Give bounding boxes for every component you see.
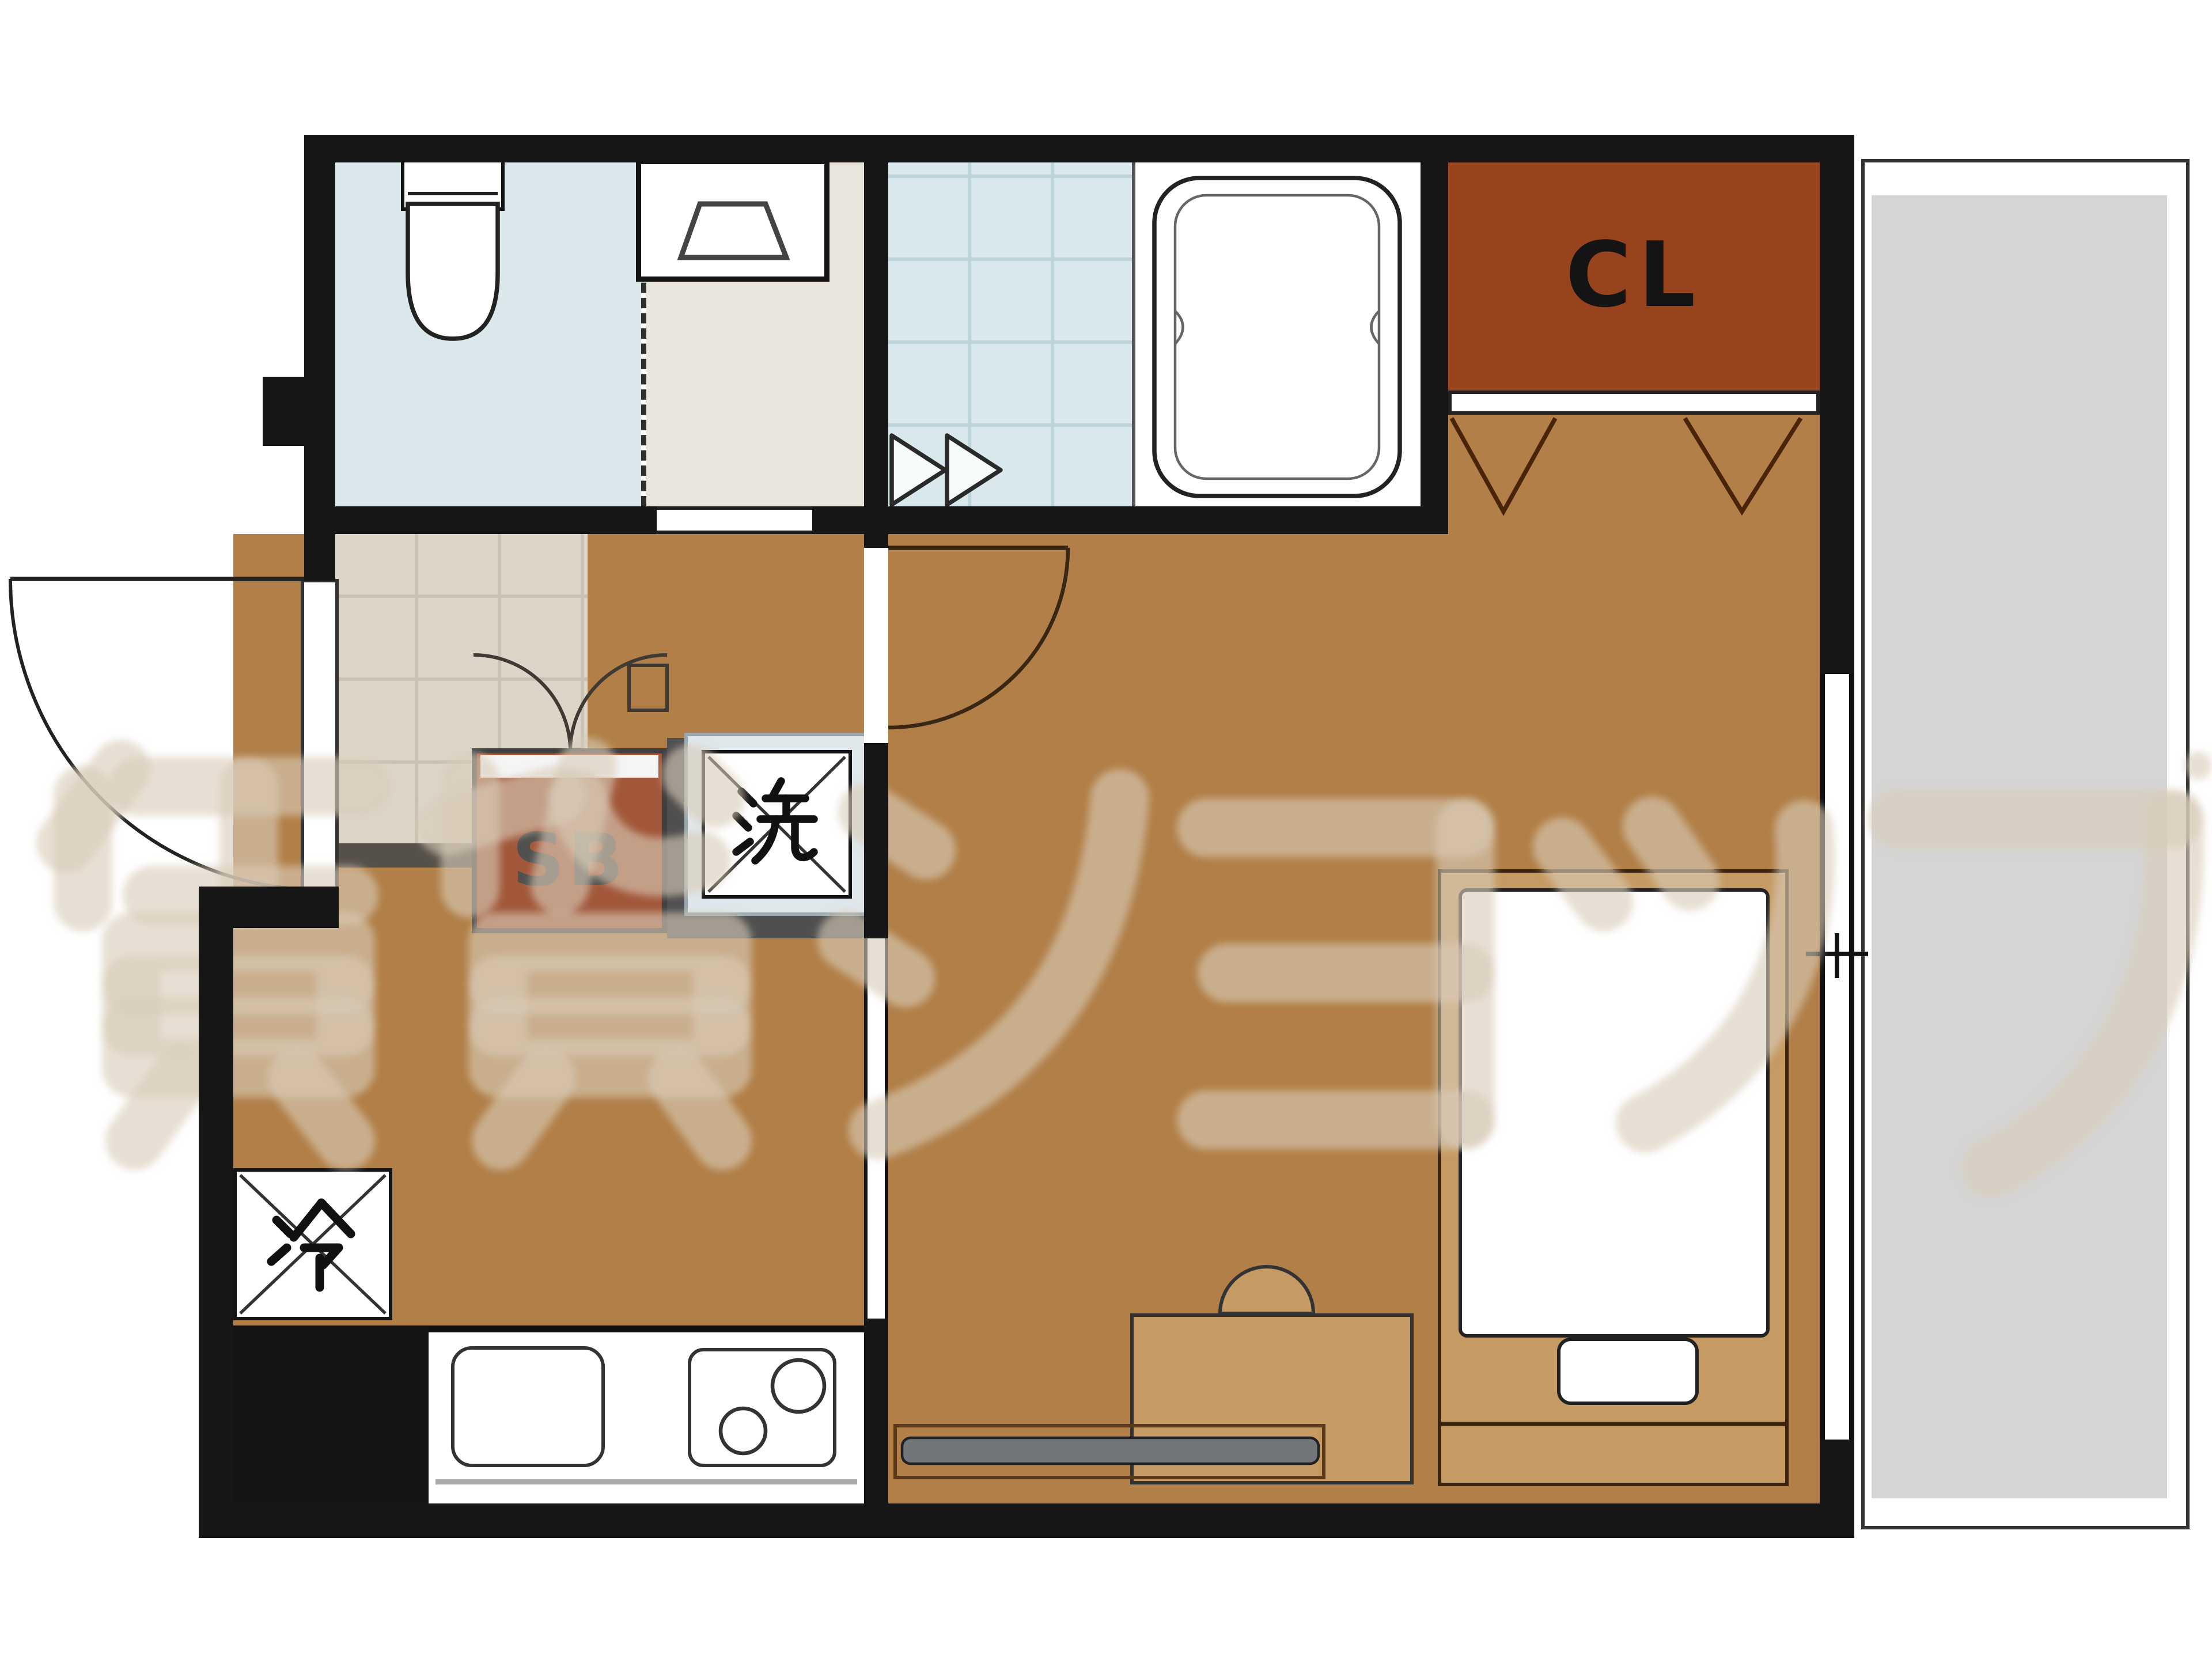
wall-hall-top-right (812, 506, 1448, 534)
wall-top (304, 135, 1854, 162)
wall-divider-mid (864, 743, 888, 938)
wall-hall-top-left (304, 506, 657, 534)
floor-plan-image: CL SB (0, 0, 2212, 1659)
floor-plan-canvas: CL SB (0, 0, 2212, 1659)
wall-divider-lower (864, 1319, 888, 1503)
shoebox-door-swing (474, 655, 667, 748)
wall-bottom (199, 1503, 1854, 1538)
closet-bifold-icon (1452, 418, 1801, 512)
toilet-icon (408, 194, 498, 339)
bathtub-icon (1154, 178, 1400, 496)
wall-entrance-jog (199, 887, 339, 928)
watermark (66, 752, 2212, 1168)
wall-right-lower (1820, 1440, 1854, 1538)
stove-burners-icon (721, 1360, 824, 1453)
chair-icon (1220, 1267, 1313, 1313)
wall-divider-upper (864, 161, 888, 548)
washer-pan-trapezoid-icon (681, 204, 786, 257)
room-door-swing (888, 548, 1068, 728)
wall-tub-closet (1421, 161, 1448, 534)
wall-left-notch (263, 377, 308, 446)
folding-door-icon (892, 435, 1001, 505)
wall-right-upper (1820, 135, 1854, 674)
tv-icon (902, 1438, 1319, 1464)
wall-left-lower (199, 928, 233, 1538)
